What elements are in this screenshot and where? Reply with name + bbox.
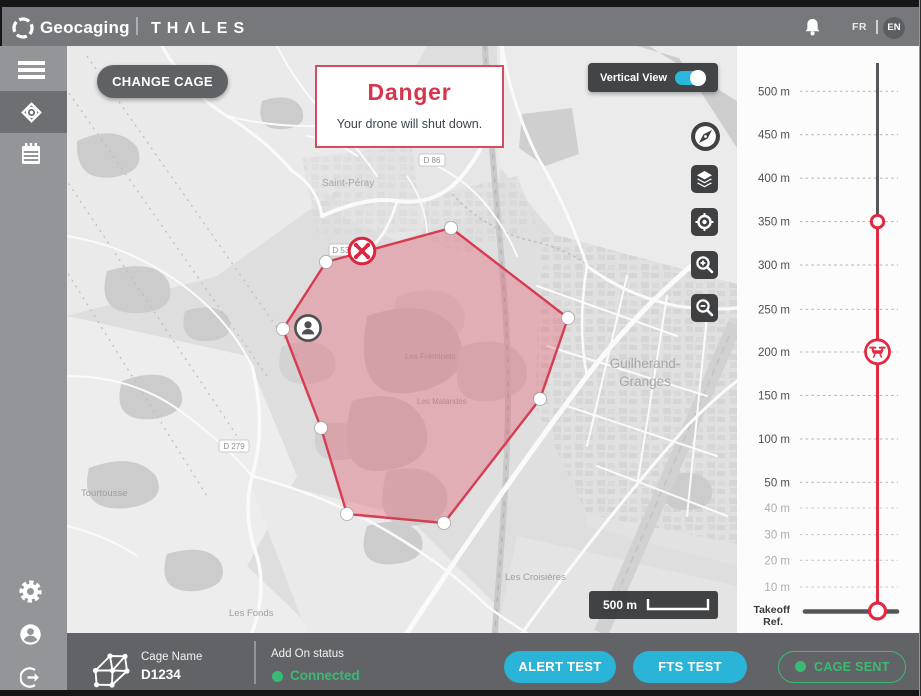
svg-text:200 m: 200 m bbox=[758, 347, 790, 359]
svg-text:Guilherand-: Guilherand- bbox=[610, 356, 681, 371]
svg-text:Granges: Granges bbox=[619, 374, 671, 389]
svg-text:20 m: 20 m bbox=[764, 555, 790, 567]
svg-text:10 m: 10 m bbox=[764, 582, 790, 594]
svg-text:D 279: D 279 bbox=[223, 442, 245, 451]
svg-text:Tourtousse: Tourtousse bbox=[81, 488, 127, 499]
svg-text:Takeoff: Takeoff bbox=[753, 604, 790, 616]
svg-text:Saint-Péray: Saint-Péray bbox=[322, 178, 374, 189]
svg-text:350 m: 350 m bbox=[758, 217, 790, 229]
svg-text:500 m: 500 m bbox=[758, 86, 790, 98]
svg-text:Ref.: Ref. bbox=[763, 616, 783, 628]
svg-text:300 m: 300 m bbox=[758, 260, 790, 272]
svg-text:100 m: 100 m bbox=[758, 434, 790, 446]
svg-text:40 m: 40 m bbox=[764, 503, 790, 515]
svg-text:Les Fonds: Les Fonds bbox=[229, 608, 274, 619]
svg-text:450 m: 450 m bbox=[758, 130, 790, 142]
svg-text:400 m: 400 m bbox=[758, 173, 790, 185]
svg-text:D 86: D 86 bbox=[424, 156, 441, 165]
svg-text:50 m: 50 m bbox=[764, 477, 790, 489]
svg-text:Les Croisières: Les Croisières bbox=[505, 572, 566, 583]
svg-text:250 m: 250 m bbox=[758, 304, 790, 316]
svg-text:150 m: 150 m bbox=[758, 390, 790, 402]
svg-text:30 m: 30 m bbox=[764, 530, 790, 542]
